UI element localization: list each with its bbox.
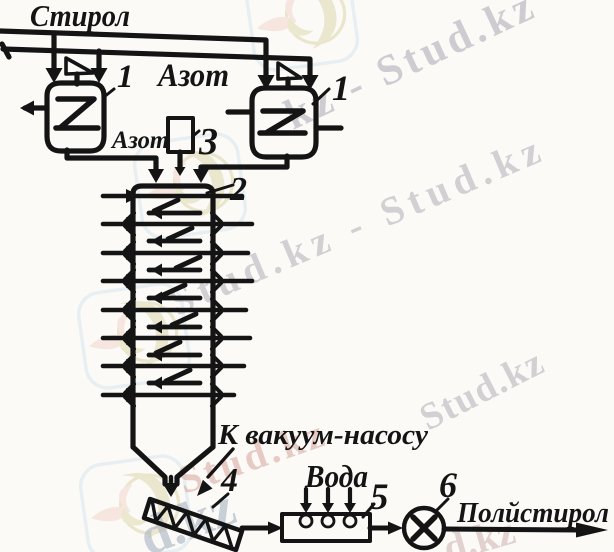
svg-text:Вода: Вода	[304, 458, 368, 494]
svg-text:3: 3	[198, 121, 218, 163]
svg-text:4: 4	[220, 462, 238, 499]
svg-text:К вакуум-насосу: К вакуум-насосу	[217, 420, 429, 451]
svg-text:Полйстирол: Полйстирол	[456, 498, 609, 529]
svg-text:2: 2	[229, 171, 247, 208]
svg-text:Азот: Азот	[156, 58, 229, 94]
svg-text:1: 1	[117, 59, 134, 95]
svg-text:Стирол: Стирол	[30, 0, 130, 33]
svg-text:Stud.kz: Stud.kz	[413, 341, 552, 439]
svg-text:1: 1	[332, 68, 350, 108]
svg-text:Азот: Азот	[110, 127, 169, 154]
svg-text:6: 6	[439, 465, 457, 505]
svg-text:5: 5	[370, 477, 389, 518]
